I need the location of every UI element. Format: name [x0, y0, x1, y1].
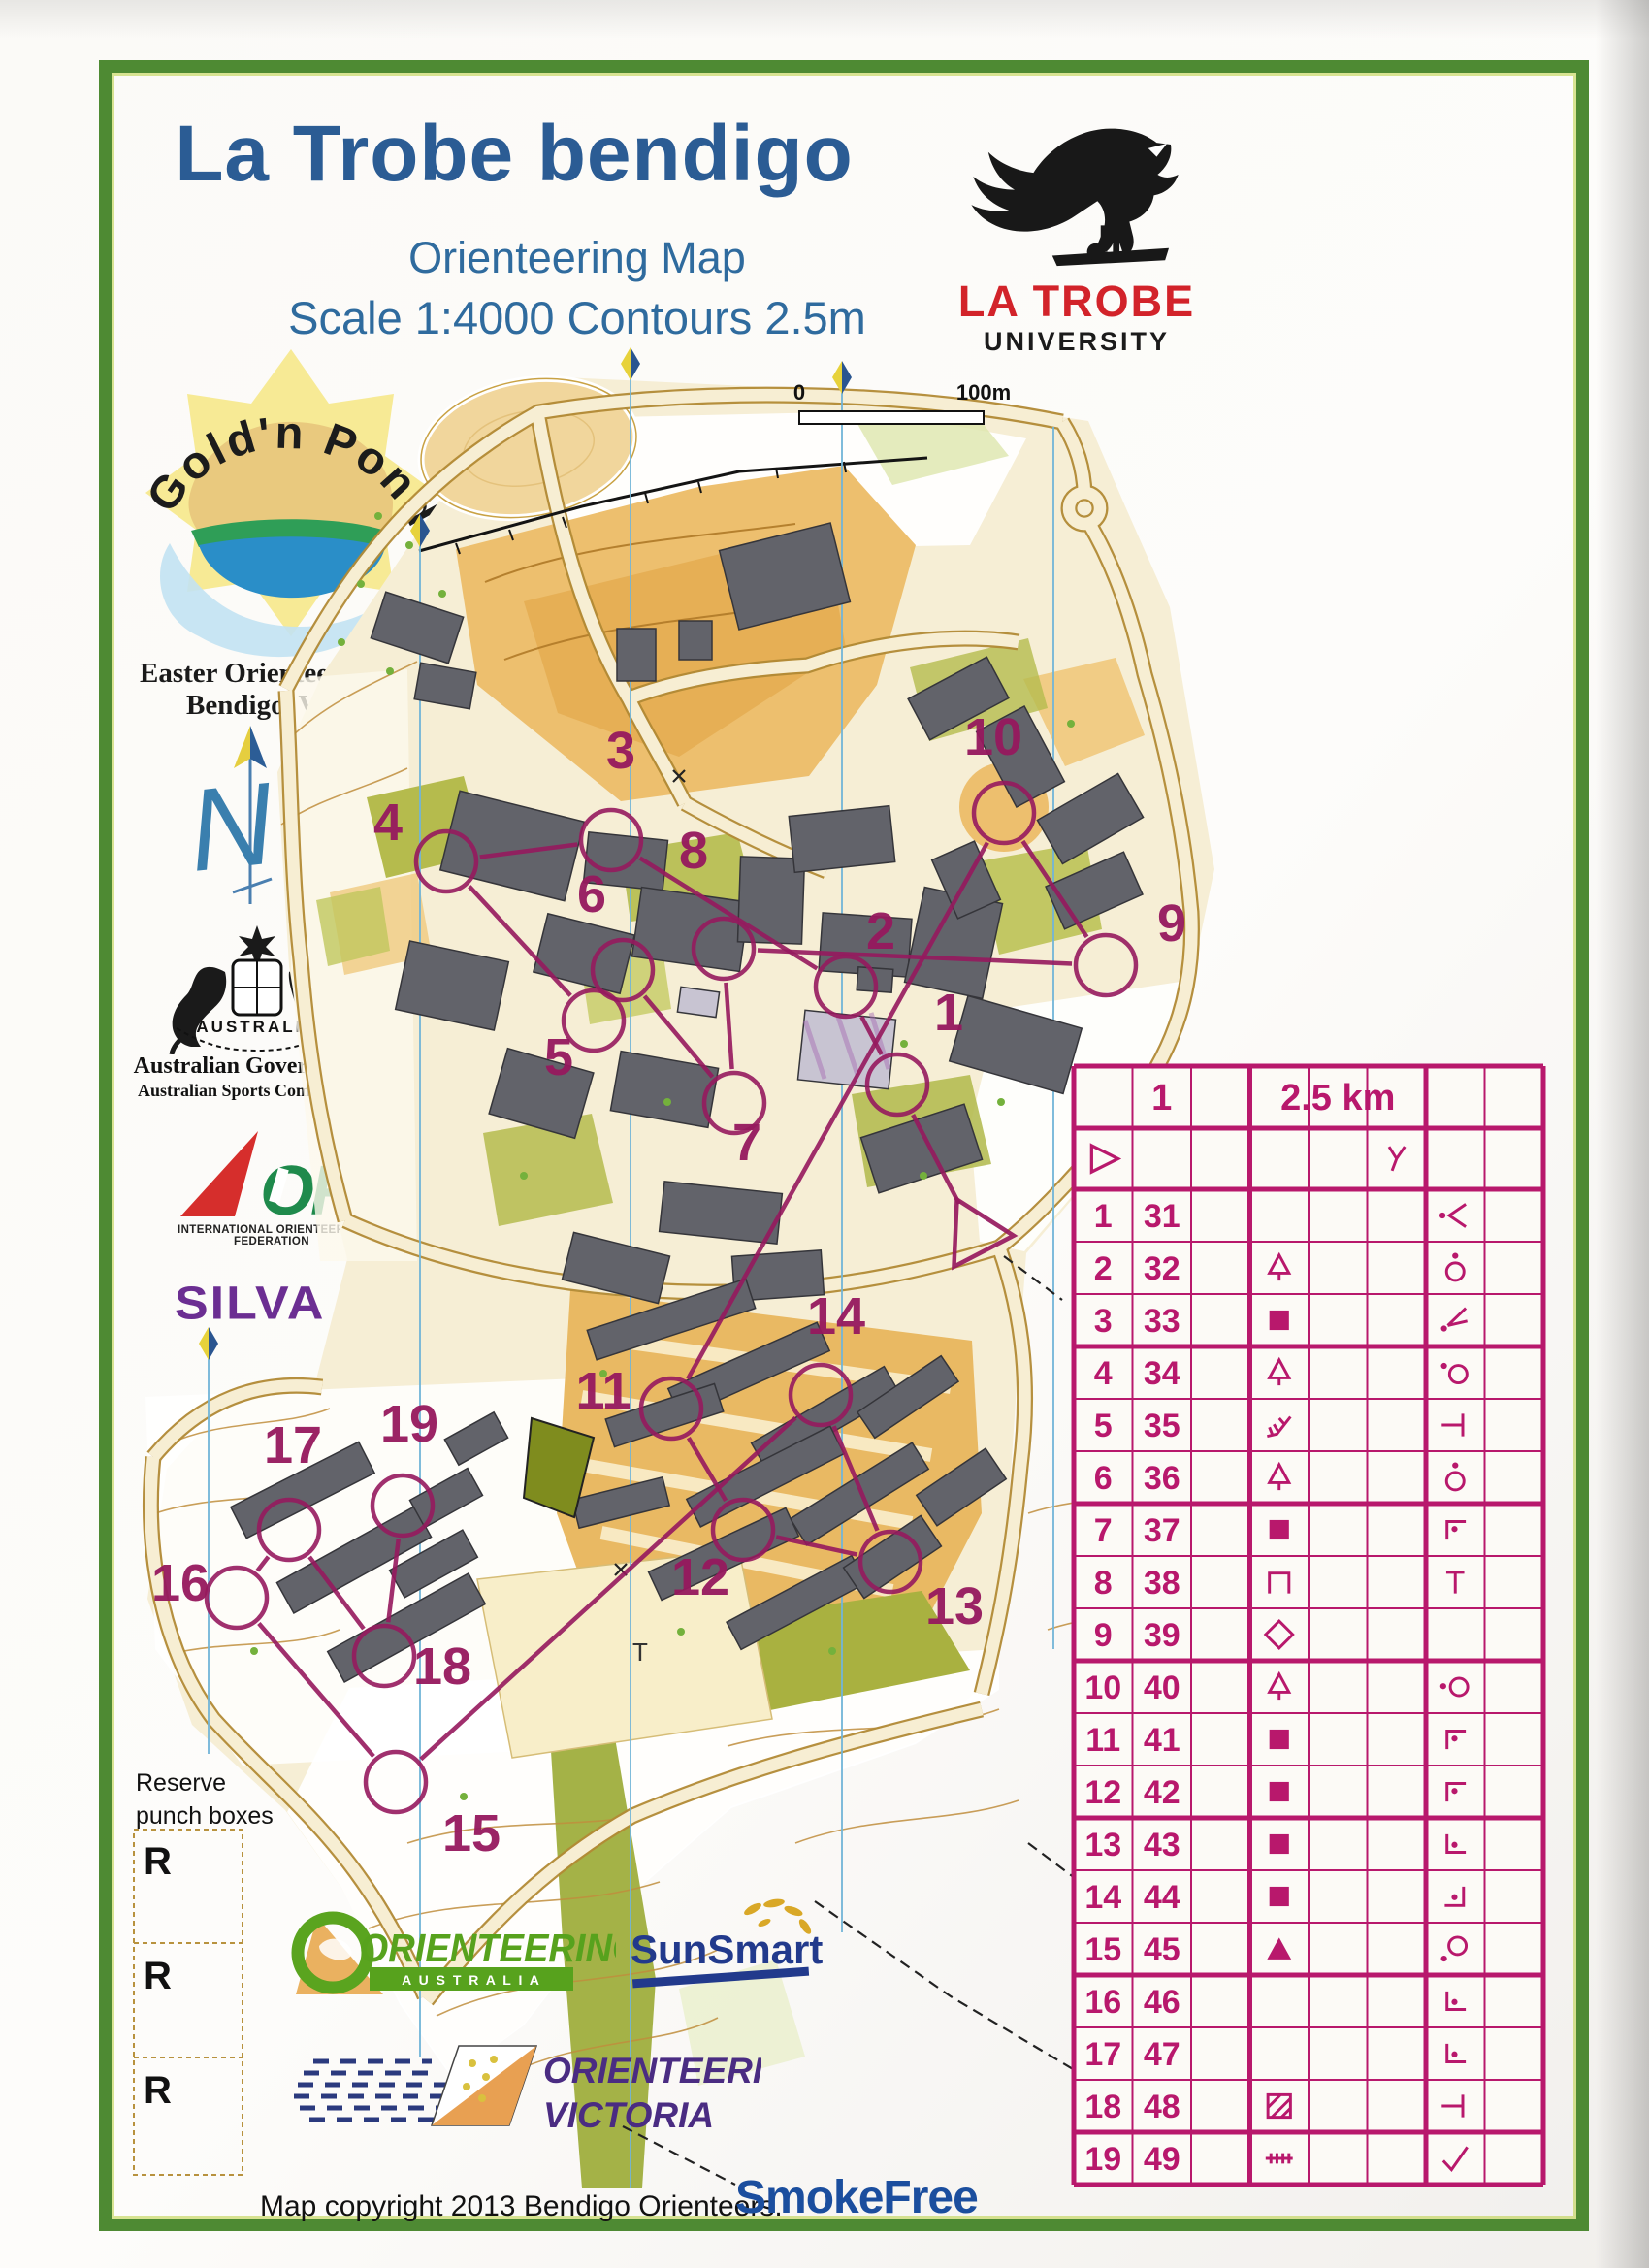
svg-text:40: 40 [1144, 1669, 1180, 1706]
svg-text:2: 2 [866, 902, 895, 960]
latrobe-university-logo: LA TROBE UNIVERSITY [921, 114, 1232, 357]
svg-text:3: 3 [1094, 1303, 1113, 1340]
svg-text:41: 41 [1144, 1722, 1180, 1759]
svg-text:4: 4 [1094, 1355, 1113, 1392]
svg-text:19: 19 [1084, 2141, 1121, 2178]
scan-top-shadow [0, 0, 1649, 39]
svg-text:15: 15 [442, 1804, 501, 1863]
svg-text:8: 8 [1094, 1565, 1113, 1602]
svg-text:18: 18 [1084, 2089, 1121, 2125]
svg-text:35: 35 [1144, 1408, 1180, 1444]
sunsmart-logo: SunSmart [629, 1894, 823, 2010]
ov-line2: VICTORIA [543, 2095, 714, 2135]
svg-text:R: R [144, 1840, 172, 1883]
control-description-table: 12.5 km131232333434535636737838939104011… [1069, 1061, 1550, 2191]
scale-100m-label: 100m [956, 380, 1011, 405]
svg-text:44: 44 [1144, 1879, 1180, 1916]
svg-text:6: 6 [577, 865, 606, 923]
svg-text:14: 14 [807, 1287, 865, 1345]
svg-text:42: 42 [1144, 1774, 1180, 1811]
svg-text:11: 11 [1085, 1722, 1120, 1759]
svg-text:16: 16 [151, 1554, 210, 1612]
orienteering-victoria-logo: ORIENTEERING VICTORIA [286, 2032, 761, 2154]
svg-text:8: 8 [679, 822, 708, 880]
ov-line1: ORIENTEERING [543, 2051, 761, 2090]
svg-text:9: 9 [1094, 1617, 1113, 1654]
svg-text:38: 38 [1144, 1565, 1180, 1602]
svg-text:31: 31 [1144, 1198, 1180, 1235]
eagle-icon [960, 114, 1193, 270]
reserve-label: Reserve [136, 1769, 226, 1798]
scanned-page: La Trobe bendigo Orienteering Map Scale … [0, 0, 1649, 2268]
svg-text:45: 45 [1144, 1931, 1180, 1968]
svg-text:1: 1 [934, 984, 963, 1042]
svg-text:33: 33 [1144, 1303, 1180, 1340]
svg-text:3: 3 [606, 722, 635, 780]
svg-text:48: 48 [1144, 2089, 1180, 2125]
svg-text:2.5 km: 2.5 km [1280, 1078, 1395, 1118]
svg-text:16: 16 [1084, 1984, 1121, 2021]
svg-text:R: R [144, 2069, 172, 2112]
sunsmart-wordmark: SunSmart [630, 1927, 823, 1972]
punch-boxes-label: punch boxes [136, 1802, 274, 1831]
copyright-text: Map copyright 2013 Bendigo Orienteers. [260, 2190, 783, 2223]
orienteering-australia-logo: ORIENTEERING A U S T R A L I A [276, 1899, 616, 2011]
page-title: La Trobe bendigo [97, 109, 931, 200]
svg-text:39: 39 [1144, 1617, 1180, 1654]
svg-text:7: 7 [732, 1114, 761, 1172]
svg-text:R: R [144, 1955, 172, 1997]
smokefree-logo: SmokeFree [735, 2171, 978, 2224]
reserve-punch-boxes: RRR [132, 1828, 246, 2179]
svg-text:36: 36 [1144, 1460, 1180, 1497]
svg-text:17: 17 [1084, 2036, 1121, 2073]
svg-text:37: 37 [1144, 1512, 1180, 1549]
svg-text:6: 6 [1094, 1460, 1113, 1497]
scan-edge-shadow [1596, 0, 1649, 2268]
svg-text:4: 4 [373, 794, 403, 852]
svg-text:47: 47 [1144, 2036, 1180, 2073]
svg-text:17: 17 [264, 1416, 322, 1474]
svg-text:9: 9 [1157, 894, 1186, 953]
svg-text:15: 15 [1084, 1931, 1121, 1968]
scale-zero-label: 0 [793, 380, 805, 405]
svg-text:11: 11 [575, 1362, 630, 1420]
svg-text:12: 12 [1084, 1774, 1121, 1811]
svg-text:19: 19 [380, 1395, 438, 1453]
svg-text:5: 5 [1094, 1408, 1113, 1444]
svg-text:10: 10 [964, 708, 1022, 766]
subtitle-scale-contours: Scale 1:4000 Contours 2.5m [213, 291, 941, 344]
oa-wordmark: ORIENTEERING [360, 1927, 616, 1971]
svg-text:12: 12 [671, 1548, 729, 1606]
svg-text:10: 10 [1084, 1669, 1121, 1706]
svg-text:18: 18 [413, 1637, 471, 1696]
svg-text:7: 7 [1094, 1512, 1113, 1549]
svg-text:2: 2 [1094, 1250, 1113, 1287]
latrobe-wordmark: LA TROBE [921, 276, 1232, 327]
oa-australia-label: A U S T R A L I A [402, 1972, 541, 1988]
svg-text:34: 34 [1144, 1355, 1180, 1392]
svg-text:13: 13 [925, 1577, 984, 1636]
svg-text:5: 5 [544, 1028, 573, 1086]
svg-text:49: 49 [1144, 2141, 1180, 2178]
svg-text:46: 46 [1144, 1984, 1180, 2021]
svg-text:14: 14 [1084, 1879, 1121, 1916]
subtitle-orienteering-map: Orienteering Map [252, 233, 902, 283]
t-area-label: T [632, 1637, 648, 1667]
svg-text:32: 32 [1144, 1250, 1180, 1287]
svg-text:1: 1 [1094, 1198, 1113, 1235]
svg-text:13: 13 [1084, 1827, 1121, 1863]
svg-text:43: 43 [1144, 1827, 1180, 1863]
svg-text:1: 1 [1151, 1078, 1172, 1118]
